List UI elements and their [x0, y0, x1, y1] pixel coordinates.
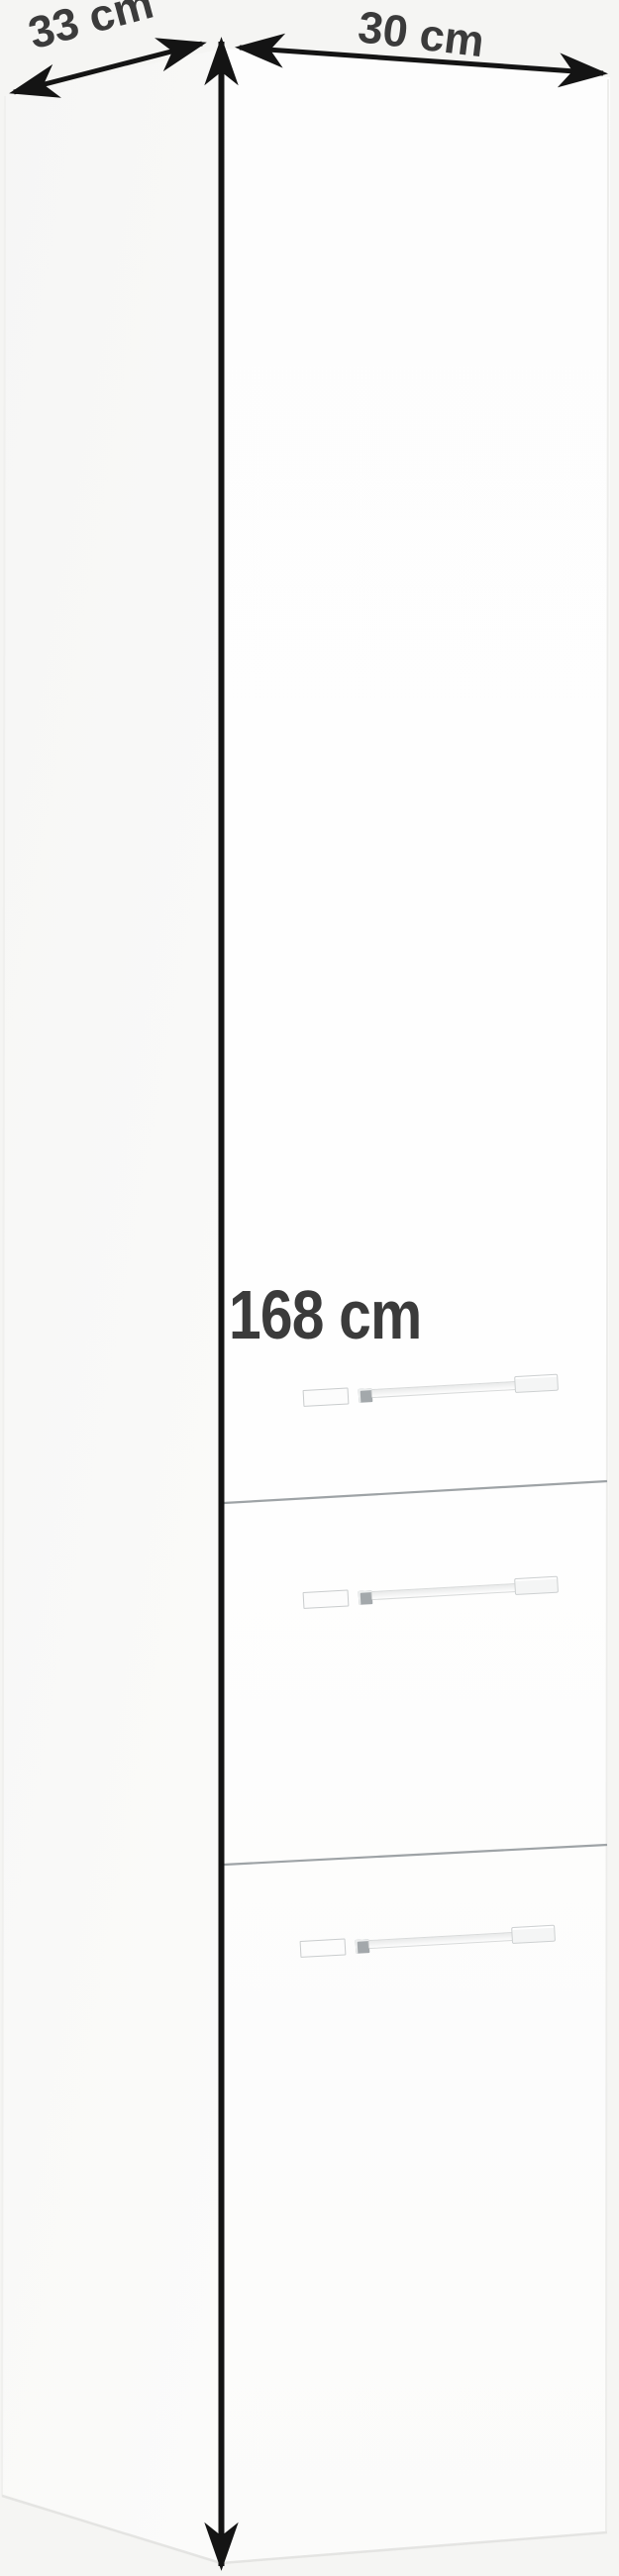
product-dimension-image: 33 cm 30 cm 168 cm: [0, 0, 619, 2576]
door-seams: [224, 1481, 607, 1865]
door-seam-upper: [224, 1481, 607, 1503]
height-dimension-label: 168 cm: [229, 1280, 421, 1349]
door-seam-lower: [224, 1845, 607, 1865]
